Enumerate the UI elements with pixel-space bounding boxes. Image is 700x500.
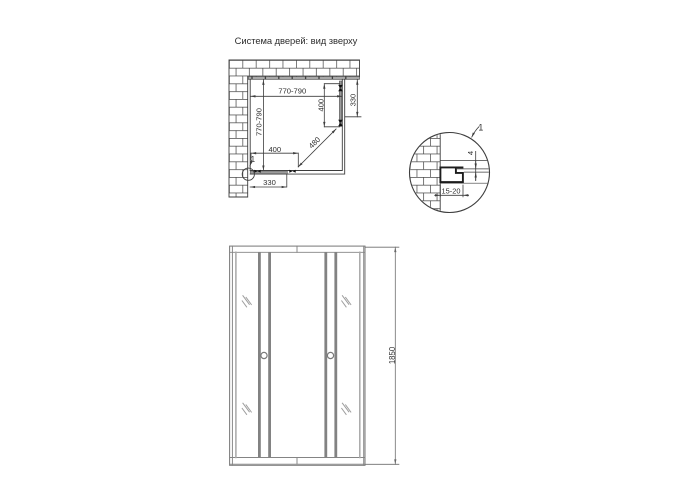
- svg-text:330: 330: [348, 94, 357, 107]
- svg-text:770-790: 770-790: [255, 108, 264, 136]
- svg-text:400: 400: [268, 145, 281, 154]
- svg-text:1: 1: [251, 155, 256, 164]
- svg-text:Система дверей: вид зверху: Система дверей: вид зверху: [235, 35, 358, 46]
- svg-text:1850: 1850: [388, 346, 397, 364]
- svg-text:4: 4: [466, 151, 475, 155]
- svg-text:480: 480: [307, 135, 322, 150]
- svg-text:400: 400: [316, 99, 325, 112]
- svg-text:330: 330: [263, 178, 276, 187]
- svg-text:15-20: 15-20: [442, 187, 461, 196]
- svg-text:1: 1: [478, 122, 483, 132]
- svg-text:770-790: 770-790: [278, 87, 306, 96]
